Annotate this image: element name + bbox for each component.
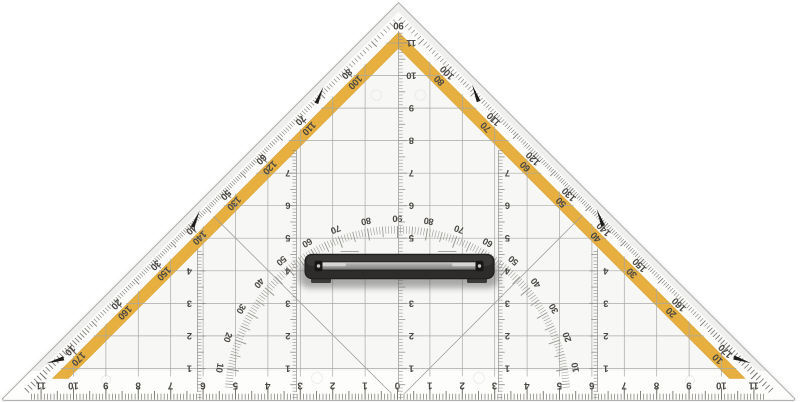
svg-text:10: 10 [407,71,417,82]
svg-text:11: 11 [748,379,759,390]
svg-text:2: 2 [187,331,192,342]
svg-text:1: 1 [285,363,290,374]
svg-text:6: 6 [285,201,290,212]
svg-text:1: 1 [426,379,432,390]
svg-text:1: 1 [409,363,414,374]
svg-text:1: 1 [187,363,192,374]
svg-text:9: 9 [686,379,692,390]
svg-text:8: 8 [135,379,141,390]
svg-text:3: 3 [297,379,303,390]
svg-text:7: 7 [285,168,290,179]
svg-text:10: 10 [68,379,79,390]
svg-text:80: 80 [360,215,371,227]
svg-text:80: 80 [423,215,434,227]
svg-text:10: 10 [214,362,226,373]
svg-text:10: 10 [570,362,582,373]
svg-text:7: 7 [409,168,414,179]
svg-text:3: 3 [603,298,608,309]
svg-text:5: 5 [409,233,414,244]
svg-text:11: 11 [407,38,416,49]
svg-text:2: 2 [459,379,465,390]
svg-text:3: 3 [285,298,290,309]
svg-text:2: 2 [603,331,608,342]
svg-text:7: 7 [621,379,627,390]
svg-text:6: 6 [505,201,510,212]
svg-text:2: 2 [409,331,414,342]
svg-text:3: 3 [491,379,497,390]
svg-text:9: 9 [102,379,108,390]
svg-text:8: 8 [409,136,414,147]
svg-text:9: 9 [409,103,414,114]
svg-text:5: 5 [285,233,290,244]
svg-text:2: 2 [285,331,290,342]
svg-text:8: 8 [653,379,659,390]
svg-text:3: 3 [187,298,192,309]
svg-text:90: 90 [393,20,404,31]
svg-text:5: 5 [505,233,510,244]
svg-text:5: 5 [232,379,238,390]
svg-text:4: 4 [264,379,270,390]
svg-text:2: 2 [505,331,510,342]
svg-text:7: 7 [505,168,510,179]
svg-text:7: 7 [167,379,173,390]
svg-text:1: 1 [362,379,368,390]
svg-text:3: 3 [505,298,510,309]
svg-text:10: 10 [716,379,727,390]
svg-text:5: 5 [556,379,562,390]
svg-text:4: 4 [524,379,530,390]
svg-text:1: 1 [505,363,510,374]
svg-text:11: 11 [35,379,46,390]
svg-text:6: 6 [409,201,414,212]
svg-text:2: 2 [329,379,335,390]
svg-text:1: 1 [603,363,608,374]
svg-text:3: 3 [409,298,414,309]
